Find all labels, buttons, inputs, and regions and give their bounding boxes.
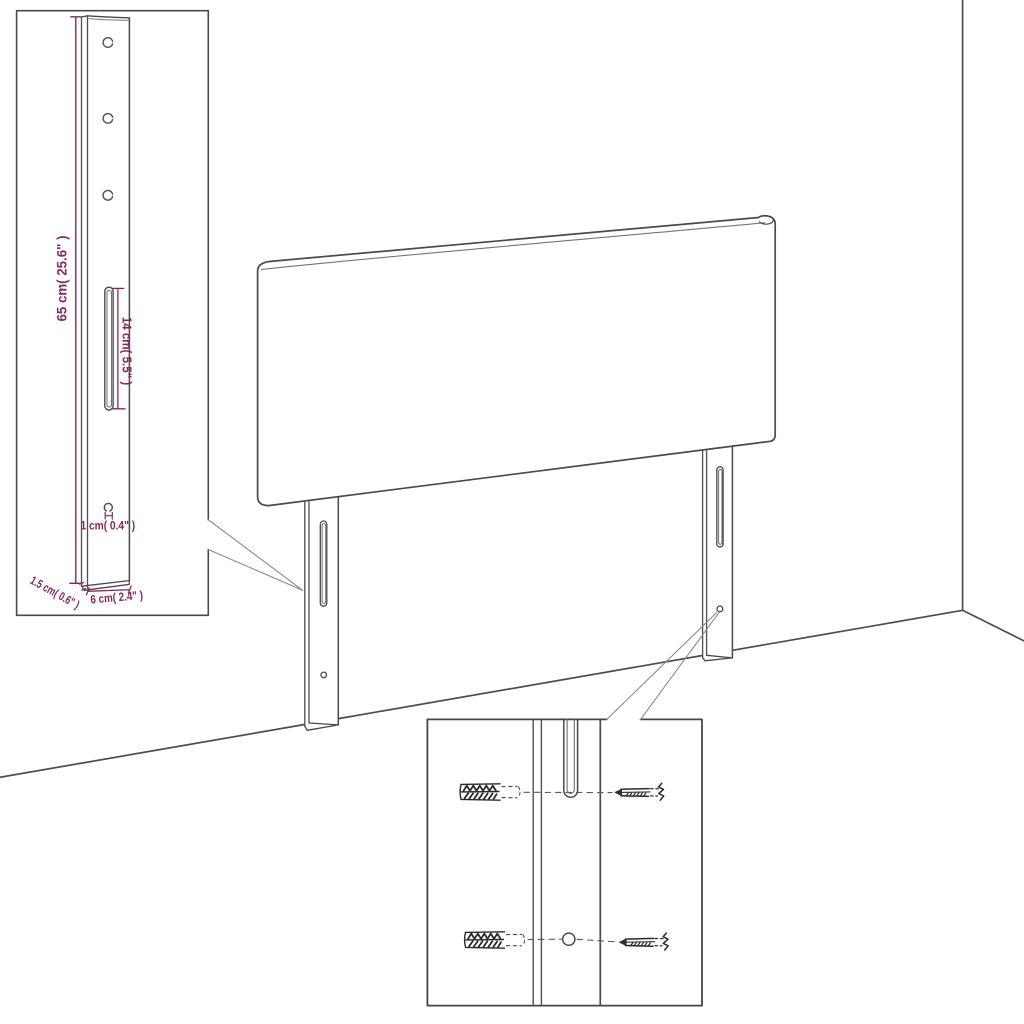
svg-text:65 cm( 25.6" ): 65 cm( 25.6" ) — [54, 235, 69, 321]
svg-text:1 cm( 0.4" ): 1 cm( 0.4" ) — [80, 520, 135, 533]
svg-text:14 cm( 5.5" ): 14 cm( 5.5" ) — [119, 317, 134, 385]
